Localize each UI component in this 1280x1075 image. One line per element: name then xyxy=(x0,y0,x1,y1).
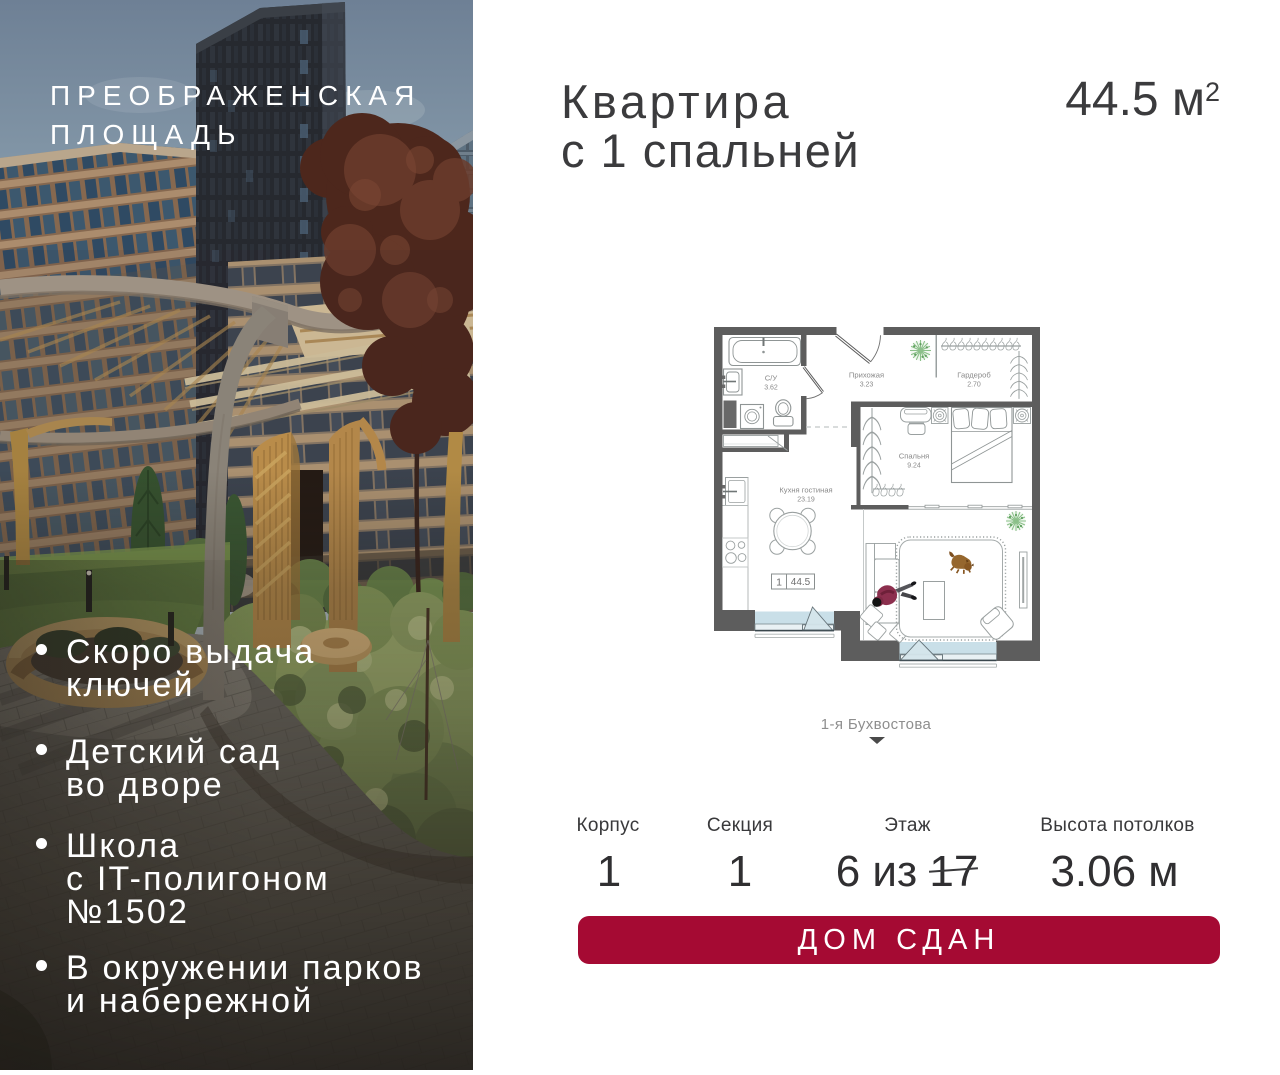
svg-text:23.19: 23.19 xyxy=(797,497,815,504)
svg-text:2.70: 2.70 xyxy=(967,382,981,389)
svg-text:Гардероб: Гардероб xyxy=(957,371,991,380)
svg-text:С/У: С/У xyxy=(765,374,778,383)
svg-text:3.23: 3.23 xyxy=(860,382,874,389)
svg-text:Кухня гостиная: Кухня гостиная xyxy=(779,486,832,495)
svg-text:Спальня: Спальня xyxy=(899,452,930,461)
svg-text:1: 1 xyxy=(776,577,782,589)
svg-text:44.5: 44.5 xyxy=(791,577,811,588)
svg-text:9.24: 9.24 xyxy=(907,463,921,470)
svg-text:3.62: 3.62 xyxy=(764,385,778,392)
svg-text:Прихожая: Прихожая xyxy=(849,371,884,380)
